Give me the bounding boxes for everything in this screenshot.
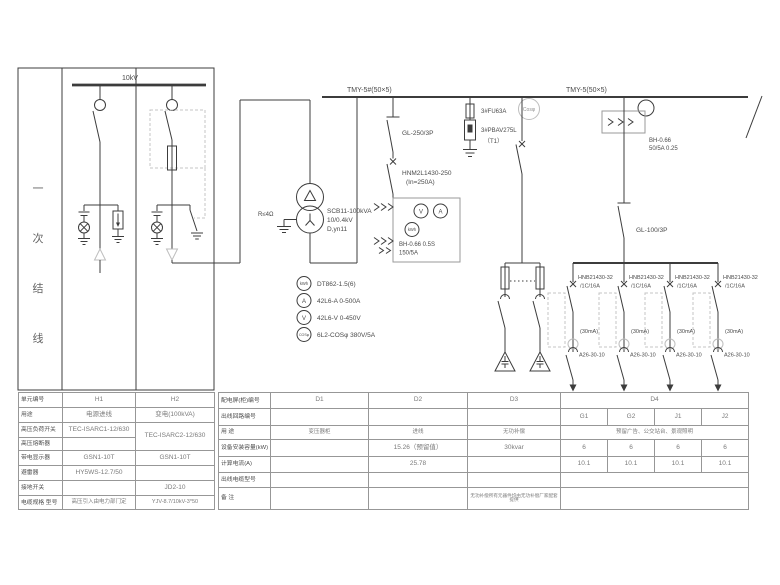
cell-circuit: G1 bbox=[561, 409, 608, 425]
legend-icon: kWh bbox=[300, 281, 309, 286]
hv-bus-label: 10kV bbox=[122, 75, 138, 82]
cell-usage-d3: 无功补偿 bbox=[468, 425, 561, 440]
bay-h2 bbox=[150, 85, 240, 263]
legend-label: 42L6-V 0-450V bbox=[317, 315, 361, 322]
delta-winding-icon bbox=[305, 191, 316, 201]
meter-icon bbox=[638, 100, 654, 116]
spd-model-label: 3#PBAV275L bbox=[481, 128, 517, 134]
bus-break-icon bbox=[746, 96, 762, 138]
row-label: 用途 bbox=[19, 407, 63, 422]
cell-capacity: 6 bbox=[655, 440, 702, 456]
feeder-contactor-label: A26-30-10 bbox=[676, 353, 702, 359]
table-row: 备 注 无功补偿所有元器件均由无功补偿厂家配套提供 bbox=[219, 487, 749, 509]
bushing-icon bbox=[167, 100, 178, 111]
breaker-icon bbox=[567, 286, 573, 312]
title-char: 结 bbox=[33, 282, 44, 295]
rcd-dashed-box bbox=[548, 293, 565, 347]
table-row: 接地开关 JD2-10 bbox=[19, 481, 215, 496]
incomer-ct-label1: BH-0.66 0.5S bbox=[399, 242, 435, 248]
feeder-model-label: HNB21430-32 bbox=[578, 275, 613, 281]
lv-outgoing-main-bay: BH-0.66 50/5A 0.25 GL-100/3P bbox=[573, 97, 718, 263]
cell-h1: 电源进线 bbox=[63, 407, 136, 422]
feeder-j1: HNB21430-32 /1C/16A (30mA) A26-30-10 bbox=[645, 263, 710, 392]
cell-capacity: 6 bbox=[561, 440, 608, 456]
lv-incomer-bay: GL-250/3P HNM2L1430-250 (In=250A) V A kW… bbox=[374, 97, 460, 262]
cell-remark bbox=[369, 487, 468, 509]
cell-current bbox=[271, 456, 369, 472]
feeder-contactor-label: A26-30-10 bbox=[724, 353, 750, 359]
table-row: 单元编号 H1 H2 bbox=[19, 393, 215, 408]
cell-current: 10.1 bbox=[561, 456, 608, 472]
title-char: 线 bbox=[33, 331, 44, 345]
table-row: 出线回路编号 G1 G2 J1 J2 bbox=[219, 409, 749, 425]
cell-circuit: J1 bbox=[655, 409, 702, 425]
cell-cable bbox=[561, 473, 749, 488]
legend-icon: COSφ bbox=[299, 333, 310, 337]
wye-winding-icon bbox=[306, 214, 315, 226]
ct-icon bbox=[379, 248, 391, 254]
breaker-icon bbox=[516, 141, 525, 174]
table-row: 出线电缆型号 bbox=[219, 473, 749, 488]
cell-h2: 变电(100kVA) bbox=[136, 407, 215, 422]
cell-d2: D2 bbox=[369, 393, 468, 409]
cell-capacity bbox=[271, 440, 369, 456]
hv-schedule-table: 单元编号 H1 H2 用途 电源进线 变电(100kVA) 高压负荷开关 TEC… bbox=[18, 392, 215, 510]
row-label: 出线回路编号 bbox=[219, 409, 271, 425]
feeder-spec-label: /1C/16A bbox=[677, 284, 697, 290]
ct-icon bbox=[374, 204, 393, 211]
transformer-ratio-label: 10/0.4kV bbox=[327, 217, 353, 224]
row-label: 单元编号 bbox=[19, 393, 63, 408]
voltage-indicator-icon bbox=[78, 205, 90, 245]
cell-h1 bbox=[63, 437, 136, 451]
cell-h2: JD2-10 bbox=[136, 481, 215, 496]
table-row: 避雷器 HY5WS-12.7/50 bbox=[19, 466, 215, 481]
cell-current: 10.1 bbox=[702, 456, 749, 472]
feeder-model-label: HNB21430-32 bbox=[723, 275, 758, 281]
hv-bus: 10kV bbox=[72, 75, 206, 85]
main-ct-label2: 50/5A 0.25 bbox=[649, 146, 678, 152]
cell-d1: D1 bbox=[271, 393, 369, 409]
row-label: 避雷器 bbox=[19, 466, 63, 481]
cell-current bbox=[468, 456, 561, 472]
cell-h2: H2 bbox=[136, 393, 215, 408]
cell-circuit: J2 bbox=[702, 409, 749, 425]
cell-empty bbox=[468, 409, 561, 425]
table-row: 用 途 变压器柜 进线 无功补偿 预留广告、公交站台、景观照明 bbox=[219, 425, 749, 440]
row-label: 用 途 bbox=[219, 425, 271, 440]
cell-h1: HY5WS-12.7/50 bbox=[63, 466, 136, 481]
outgoing-arrow-icon bbox=[570, 385, 577, 392]
drawing-sheet: 一 次 结 线 10kV bbox=[0, 0, 780, 585]
table-row: 计算电流(A) 25.78 10.1 10.1 10.1 10.1 bbox=[219, 456, 749, 472]
outgoing-arrow-icon bbox=[621, 385, 628, 392]
disconnect-switch-icon bbox=[93, 111, 100, 142]
cell-capacity: 15.26（预留值） bbox=[369, 440, 468, 456]
row-label: 接地开关 bbox=[19, 481, 63, 496]
feeder-j2: HNB21430-32 /1C/16A (30mA) A26-30-10 bbox=[693, 263, 758, 392]
feeder-spec-label: /1C/16A bbox=[631, 284, 651, 290]
kwh-meter-label: kWh bbox=[408, 227, 417, 232]
ground-resistance-label: R≤4Ω bbox=[258, 212, 274, 218]
switch-blade-icon bbox=[387, 120, 393, 152]
feeder-spec-label: /1C/16A bbox=[725, 284, 745, 290]
earthing-switch-icon bbox=[190, 205, 203, 239]
cell-d3: D3 bbox=[468, 393, 561, 409]
table-row: 用途 电源进线 变电(100kVA) bbox=[19, 407, 215, 422]
table-row: 设备安装容量(kW) 15.26（预留值） 30kvar 6 6 6 6 bbox=[219, 440, 749, 456]
legend-label: 42L6-A 0-500A bbox=[317, 298, 361, 305]
rcd-dashed-box bbox=[645, 293, 662, 347]
ct-icon bbox=[608, 119, 633, 126]
row-label: 备 注 bbox=[219, 487, 271, 509]
outgoing-arrow-icon bbox=[667, 385, 674, 392]
capacitor-icon bbox=[530, 352, 550, 371]
feeder-rcd-label: (30mA) bbox=[580, 329, 598, 335]
bushing-icon bbox=[95, 100, 106, 111]
feeder-contactor-label: A26-30-10 bbox=[579, 353, 605, 359]
cell-usage-d4: 预留广告、公交站台、景观照明 bbox=[561, 425, 749, 440]
feeder-g1: HNB21430-32 /1C/16A (30mA) A26-30-10 bbox=[548, 263, 613, 392]
incomer-breaker-label: HNM2L1430-250 bbox=[402, 170, 452, 177]
table-row: 配电屏(柜)编号 D1 D2 D3 D4 bbox=[219, 393, 749, 409]
ct-icon bbox=[374, 238, 393, 245]
cell-h1: GSN1-10T bbox=[63, 451, 136, 466]
capacitor-bank-bay: Cosφ bbox=[495, 97, 550, 371]
cell-capacity: 6 bbox=[608, 440, 655, 456]
row-label: 设备安装容量(kW) bbox=[219, 440, 271, 456]
title-char: 一 bbox=[33, 183, 44, 195]
feeder-rcd-label: (30mA) bbox=[677, 329, 695, 335]
cell-circuit: G2 bbox=[608, 409, 655, 425]
lv-bus: TMY-5#(50×5) TMY-5(50×5) bbox=[322, 87, 762, 138]
incomer-switch-label: GL-250/3P bbox=[402, 130, 433, 137]
lv-bus-label-left: TMY-5#(50×5) bbox=[347, 87, 392, 94]
bay-h1 bbox=[78, 85, 124, 273]
cell-remark-d3: 无功补偿所有元器件均由无功补偿厂家配套提供 bbox=[468, 487, 561, 509]
row-label: 高压负荷开关 bbox=[19, 422, 63, 437]
lv-schedule-table: 配电屏(柜)编号 D1 D2 D3 D4 出线回路编号 G1 G2 J1 J2 … bbox=[218, 392, 749, 510]
row-label: 计算电流(A) bbox=[219, 456, 271, 472]
feeder-spec-label: /1C/16A bbox=[580, 284, 600, 290]
row-label: 带电显示器 bbox=[19, 451, 63, 466]
spd-fuse-label: 3#FU63A bbox=[481, 109, 506, 115]
legend-label: 6L2-COSφ 380V/5A bbox=[317, 332, 376, 339]
cell-capacity: 6 bbox=[702, 440, 749, 456]
cable-exit-icon bbox=[167, 249, 178, 260]
cell-usage-d1: 变压器柜 bbox=[271, 425, 369, 440]
cell-h2: GSN1-10T bbox=[136, 451, 215, 466]
cell-h1: 高压引入由电力部门定 bbox=[63, 496, 136, 510]
switch-blade-icon bbox=[618, 206, 624, 238]
arrester-icon bbox=[112, 205, 124, 243]
cell-cable bbox=[369, 473, 468, 488]
ammeter-label: A bbox=[438, 210, 442, 216]
rcd-dashed-box bbox=[599, 293, 616, 347]
row-label: 高压熔断器 bbox=[19, 437, 63, 451]
cell-h2: YJV-8.7/10kV-3*50 bbox=[136, 496, 215, 510]
cell-current: 10.1 bbox=[608, 456, 655, 472]
cell-h1: H1 bbox=[63, 393, 136, 408]
legend-icon: V bbox=[302, 316, 306, 322]
spd-tag-label: （T1） bbox=[484, 138, 503, 145]
cell-current: 10.1 bbox=[655, 456, 702, 472]
neutral-ground-icon bbox=[277, 220, 297, 233]
cos-meter-label: Cosφ bbox=[523, 107, 536, 113]
cell-cable bbox=[271, 473, 369, 488]
main-ct-label1: BH-0.66 bbox=[649, 138, 672, 144]
cell-remark bbox=[271, 487, 369, 509]
cell-h2: TEC-ISARC2-12/630 bbox=[136, 422, 215, 451]
feeder-g2: HNB21430-32 /1C/16A (30mA) A26-30-10 bbox=[599, 263, 664, 392]
cell-remark bbox=[561, 487, 749, 509]
feeder-rcd-label: (30mA) bbox=[725, 329, 743, 335]
load-switch-icon bbox=[165, 111, 172, 140]
voltage-indicator-icon bbox=[151, 205, 163, 245]
table-row: 带电显示器 GSN1-10T GSN1-10T bbox=[19, 451, 215, 466]
title-char: 次 bbox=[33, 231, 44, 245]
cell-current: 25.78 bbox=[369, 456, 468, 472]
cell-h2 bbox=[136, 466, 215, 481]
breaker-icon bbox=[712, 286, 718, 312]
meter-legend: kWh DT862-1.5(6) A 42L6-A 0-500A V 42L6-… bbox=[297, 277, 376, 342]
cell-d4: D4 bbox=[561, 393, 749, 409]
cell-usage-d2: 进线 bbox=[369, 425, 468, 440]
breaker-icon bbox=[618, 286, 624, 312]
capacitor-branch bbox=[495, 263, 515, 371]
outgoing-arrow-icon bbox=[715, 385, 722, 392]
incomer-breaker-in-label: (In=250A) bbox=[406, 179, 435, 186]
row-label: 配电屏(柜)编号 bbox=[219, 393, 271, 409]
cell-empty bbox=[271, 409, 369, 425]
transformer-model-label: SCB11-100kVA bbox=[327, 208, 372, 215]
table-row: 高压负荷开关 TEC-ISARC1-12/630 TEC-ISARC2-12/6… bbox=[19, 422, 215, 437]
cell-h1: TEC-ISARC1-12/630 bbox=[63, 422, 136, 437]
main-switch-label: GL-100/3P bbox=[636, 227, 667, 234]
voltmeter-label: V bbox=[419, 210, 423, 216]
breaker-icon bbox=[664, 286, 670, 312]
legend-icon: A bbox=[302, 299, 306, 305]
lv-bus-label-right: TMY-5(50×5) bbox=[566, 87, 607, 94]
feeder-model-label: HNB21430-32 bbox=[629, 275, 664, 281]
table-row: 电缆规格 型号 高压引入由电力部门定 YJV-8.7/10kV-3*50 bbox=[19, 496, 215, 510]
legend-label: DT862-1.5(6) bbox=[317, 281, 356, 288]
cell-capacity: 30kvar bbox=[468, 440, 561, 456]
cable-entry-icon bbox=[95, 249, 106, 260]
spd-bay: 3#FU63A 3#PBAV275L （T1） bbox=[463, 97, 517, 157]
cell-h1 bbox=[63, 481, 136, 496]
interlock-dashed-box bbox=[150, 110, 205, 168]
breaker-icon bbox=[387, 159, 396, 195]
transformer-circuit: R≤4Ω SCB11-100kVA 10/0.4kV D,yn11 bbox=[240, 98, 372, 263]
feeder-model-label: HNB21430-32 bbox=[675, 275, 710, 281]
row-label: 出线电缆型号 bbox=[219, 473, 271, 488]
cell-empty bbox=[369, 409, 468, 425]
capacitor-branch bbox=[530, 263, 550, 371]
capacitor-icon bbox=[495, 352, 515, 371]
sheet-title: 一 次 结 线 bbox=[33, 183, 44, 345]
row-label: 电缆规格 型号 bbox=[19, 496, 63, 510]
feeder-contactor-label: A26-30-10 bbox=[630, 353, 656, 359]
cell-cable bbox=[468, 473, 561, 488]
feeder-rcd-label: (30mA) bbox=[631, 329, 649, 335]
transformer-vector-label: D,yn11 bbox=[327, 226, 347, 233]
incomer-ct-label2: 150/5A bbox=[399, 251, 418, 257]
rcd-dashed-box bbox=[693, 293, 710, 347]
